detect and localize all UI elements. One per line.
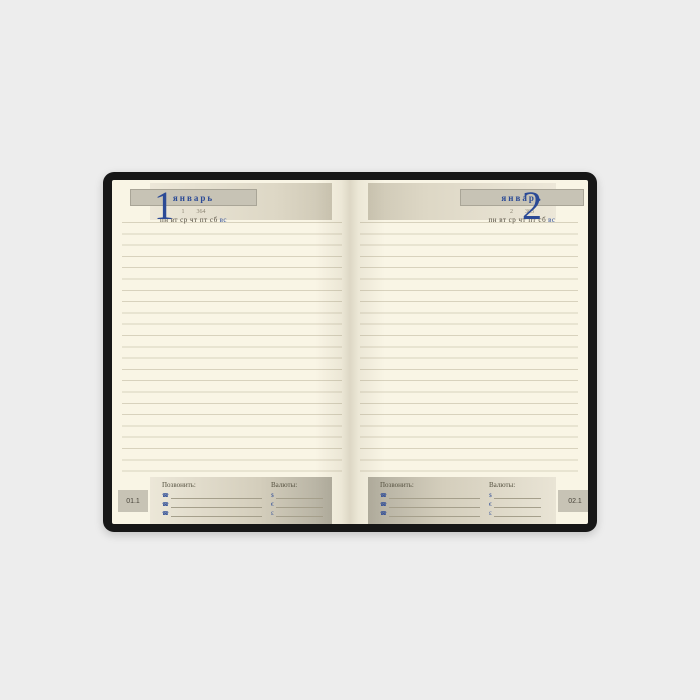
currencies-label: Валюты: — [271, 481, 323, 489]
call-line: ☎ — [162, 499, 262, 508]
currency-line: € — [271, 499, 323, 508]
currency-line: £ — [489, 508, 541, 517]
currency-line: € — [489, 499, 541, 508]
call-line: ☎ — [380, 490, 480, 499]
write-line — [494, 516, 541, 517]
day-number: 1 — [154, 186, 174, 226]
day-of-year: 1 — [182, 209, 185, 216]
write-line — [389, 516, 480, 517]
ruled-lines — [360, 222, 578, 474]
footer-panel: Позвонить: ☎ ☎ ☎ Валюты: $ — [368, 477, 556, 524]
currency-section: Валюты: $ € £ — [271, 481, 323, 524]
currencies-label: Валюты: — [489, 481, 541, 489]
currency-section: Валюты: $ € £ — [489, 481, 541, 524]
currency-line: $ — [271, 490, 323, 499]
ruled-lines — [122, 222, 342, 474]
diary-page-left: январь 1 1 364 пн вт ср чт пт сбвс Позво… — [112, 180, 350, 524]
write-line — [276, 516, 323, 517]
date-tab: 02.1 — [558, 490, 588, 512]
days-remaining: 364 — [197, 209, 206, 216]
date-tab: 01.1 — [118, 490, 148, 512]
write-line — [171, 516, 262, 517]
month-bar: январь — [130, 189, 257, 206]
product-photo: январь 1 1 364 пн вт ср чт пт сбвс Позво… — [0, 0, 700, 700]
currency-line: £ — [271, 508, 323, 517]
day-number: 2 — [522, 186, 542, 226]
call-line: ☎ — [162, 508, 262, 517]
pound-icon: £ — [271, 512, 274, 518]
phone-icon: ☎ — [162, 512, 169, 518]
sunday-label: вс — [548, 216, 555, 224]
call-line: ☎ — [380, 499, 480, 508]
call-label: Позвонить: — [380, 481, 480, 489]
pound-icon: £ — [489, 512, 492, 518]
diary-page-right: январь 2 2 363 пн вт ср чт пт сбвс Позво… — [350, 180, 588, 524]
month-label: январь — [173, 193, 214, 203]
footer-panel: Позвонить: ☎ ☎ ☎ Валюты: $ — [150, 477, 332, 524]
sunday-label: вс — [220, 216, 227, 224]
currency-line: $ — [489, 490, 541, 499]
mini-calendar: 1 364 пн вт ср чт пт сбвс — [130, 209, 257, 224]
call-label: Позвонить: — [162, 481, 262, 489]
call-section: Позвонить: ☎ ☎ ☎ — [380, 481, 480, 524]
day-counters: 1 364 — [130, 209, 257, 216]
call-line: ☎ — [162, 490, 262, 499]
diary-open-pages: январь 1 1 364 пн вт ср чт пт сбвс Позво… — [112, 180, 588, 524]
phone-icon: ☎ — [380, 512, 387, 518]
call-line: ☎ — [380, 508, 480, 517]
call-section: Позвонить: ☎ ☎ ☎ — [162, 481, 262, 524]
day-of-year: 2 — [510, 209, 513, 216]
weekdays-row: пн вт ср чт пт сбвс — [130, 217, 257, 225]
